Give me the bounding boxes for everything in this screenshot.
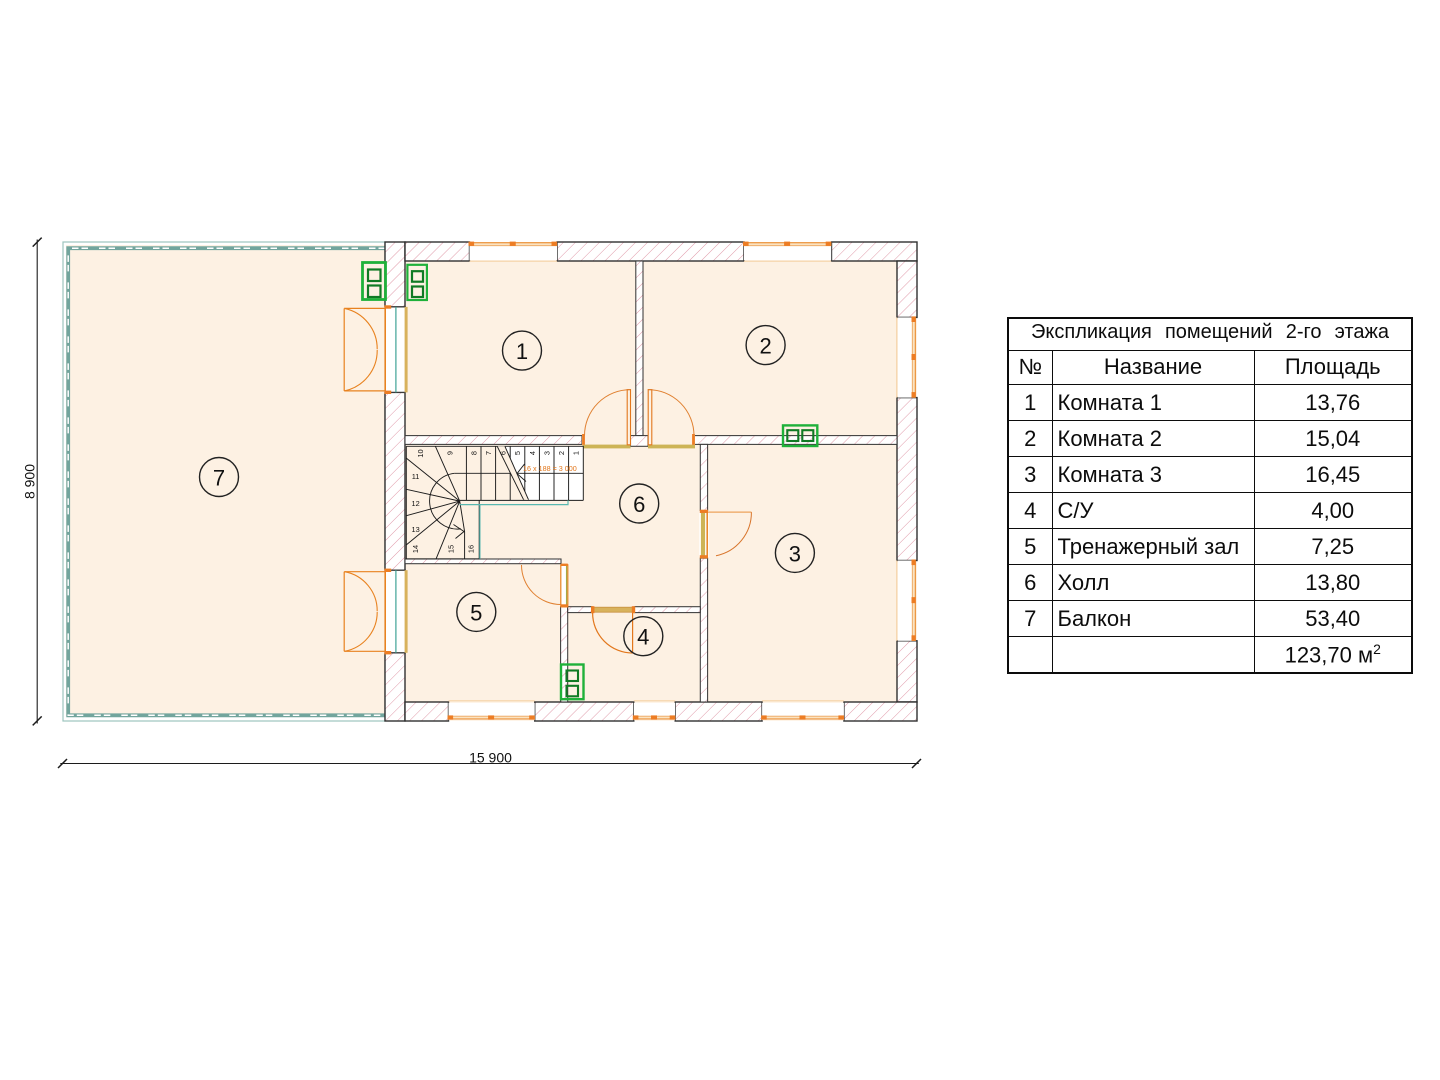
- svg-text:10: 10: [416, 449, 425, 457]
- svg-text:16: 16: [467, 545, 476, 553]
- svg-text:1: 1: [516, 339, 528, 364]
- svg-text:2: 2: [557, 451, 566, 455]
- svg-text:16 x 188 = 3 000: 16 x 188 = 3 000: [523, 464, 577, 473]
- svg-text:15: 15: [446, 545, 455, 553]
- svg-text:6: 6: [633, 492, 645, 517]
- svg-text:7: 7: [213, 466, 225, 491]
- svg-text:5: 5: [470, 600, 482, 625]
- svg-text:2: 2: [759, 334, 771, 359]
- svg-text:3: 3: [789, 541, 801, 566]
- svg-text:8 900: 8 900: [22, 464, 38, 499]
- svg-text:8: 8: [469, 451, 478, 455]
- svg-text:14: 14: [411, 545, 420, 553]
- svg-text:4: 4: [528, 451, 537, 455]
- svg-text:7: 7: [484, 451, 493, 455]
- svg-text:12: 12: [411, 499, 419, 508]
- svg-text:5: 5: [513, 451, 522, 455]
- svg-text:4: 4: [637, 625, 649, 650]
- svg-text:6: 6: [499, 451, 508, 455]
- svg-text:3: 3: [542, 451, 551, 455]
- svg-text:11: 11: [412, 472, 420, 481]
- svg-text:9: 9: [446, 451, 455, 455]
- svg-text:13: 13: [411, 525, 419, 534]
- svg-text:15 900: 15 900: [469, 749, 512, 765]
- svg-text:1: 1: [572, 451, 581, 455]
